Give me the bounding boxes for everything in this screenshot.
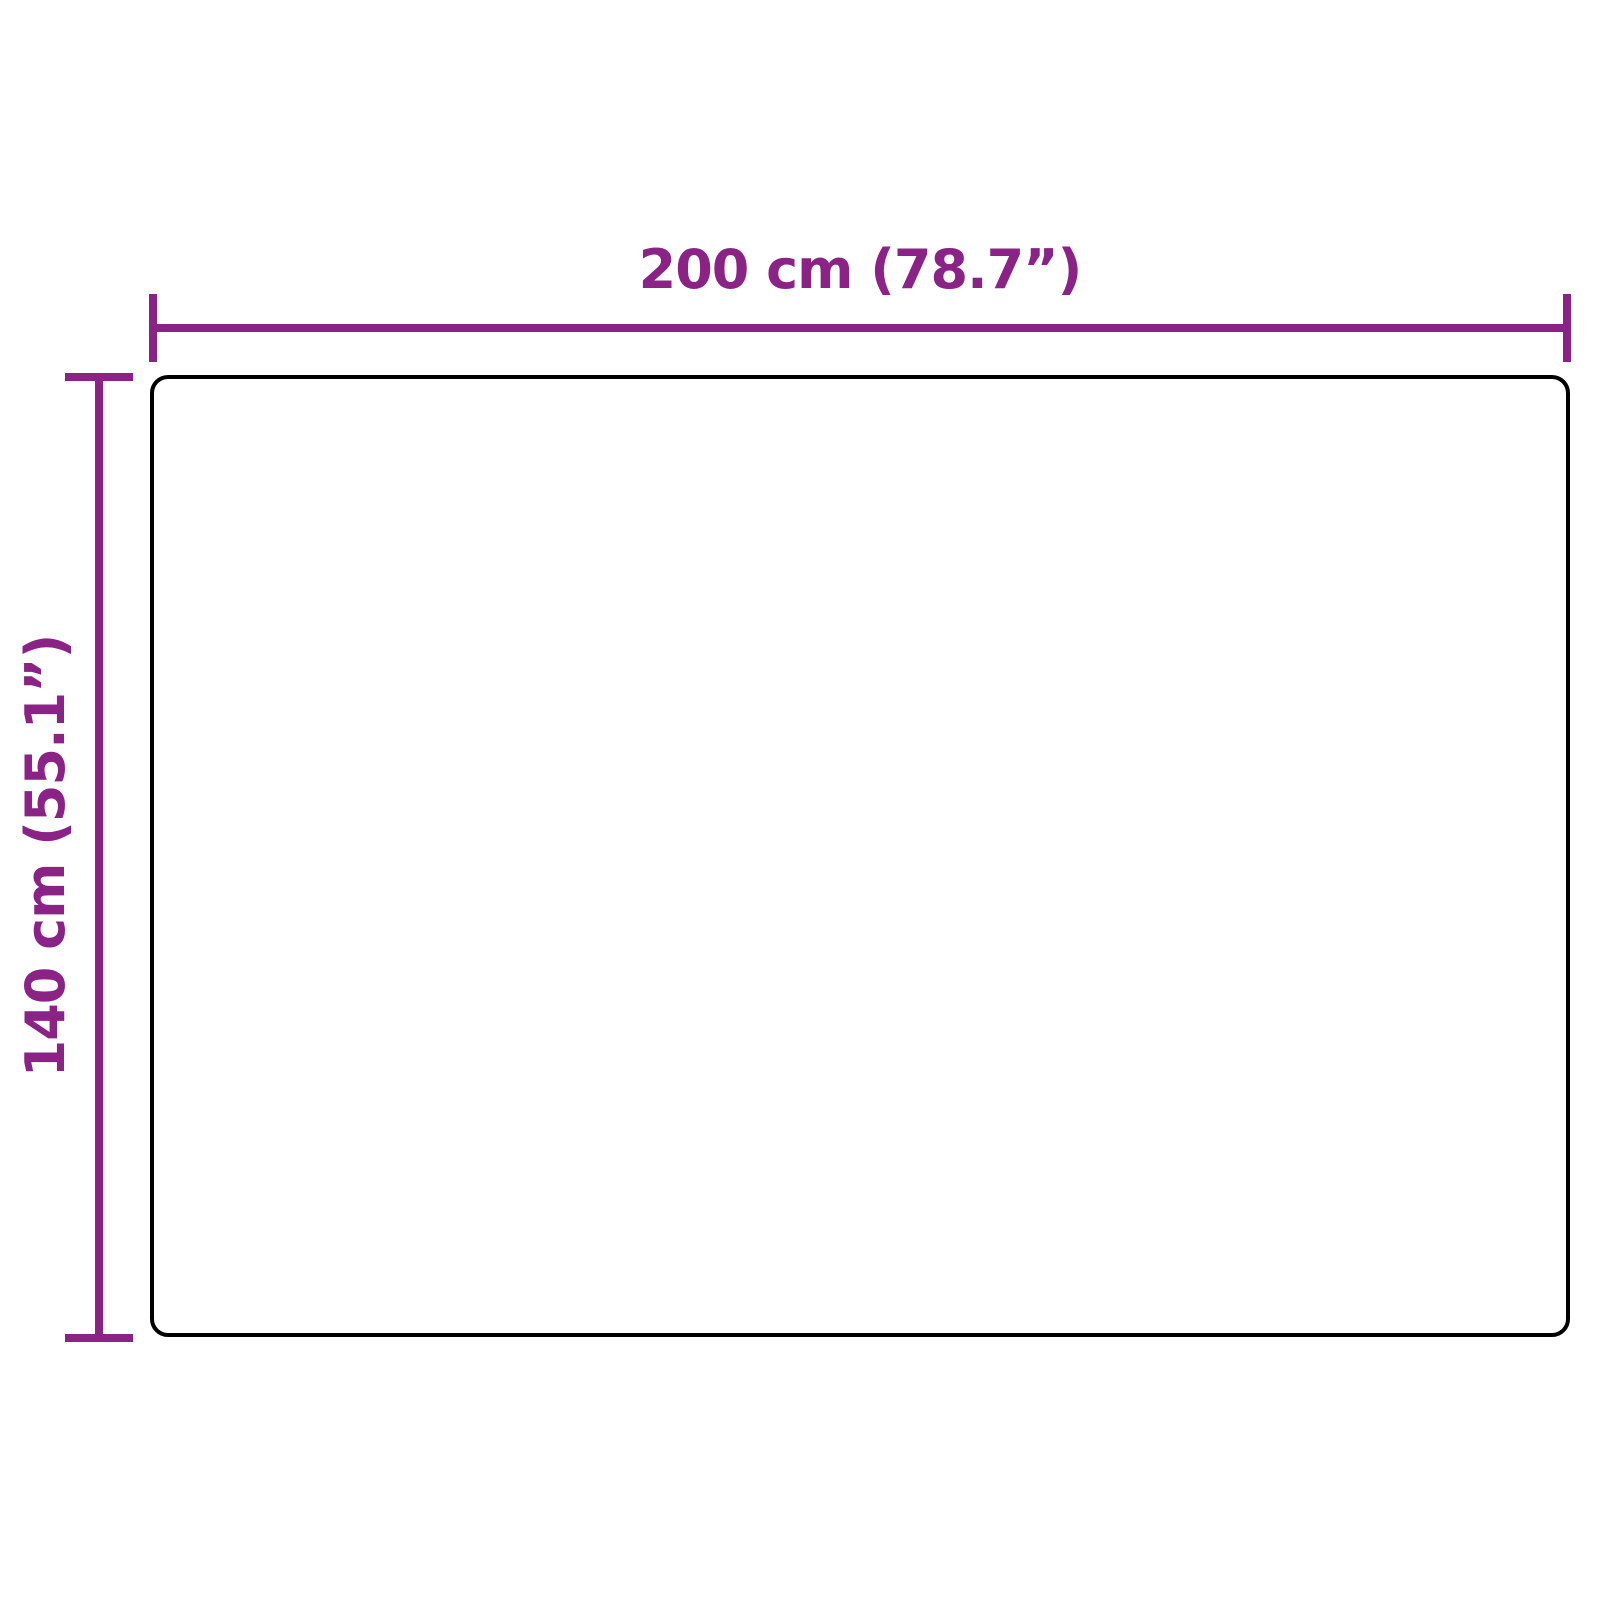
- width-dimension-cap-left: [149, 294, 157, 362]
- product-outline-rectangle: [150, 375, 1570, 1337]
- height-dimension-cap-bottom: [65, 1334, 133, 1342]
- height-dimension-label: 140 cm (55.1”): [16, 556, 76, 1156]
- width-dimension-line: [150, 324, 1570, 332]
- height-dimension-line: [95, 375, 103, 1340]
- dimension-diagram: 200 cm (78.7”) 140 cm (55.1”): [0, 0, 1600, 1600]
- height-dimension-cap-top: [65, 373, 133, 381]
- width-dimension-cap-right: [1563, 294, 1571, 362]
- width-dimension-label: 200 cm (78.7”): [150, 238, 1570, 301]
